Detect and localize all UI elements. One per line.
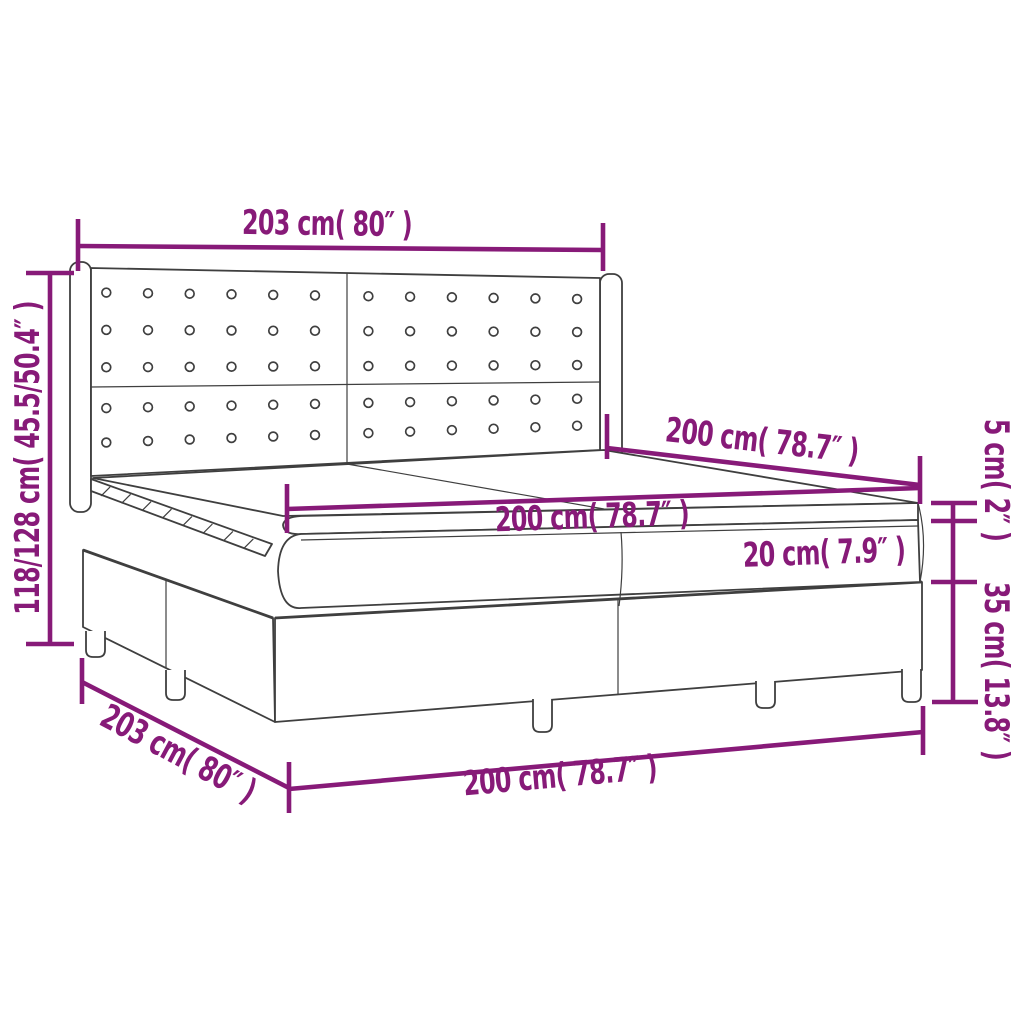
tufting-button — [448, 361, 457, 370]
tufting-button — [448, 397, 457, 406]
tufting-button — [406, 327, 415, 336]
tufting-button — [269, 362, 278, 371]
tufting-button — [185, 363, 194, 372]
tufting-button — [144, 326, 153, 335]
tufting-button — [364, 399, 373, 408]
tufting-button — [531, 395, 540, 404]
tufting-button — [102, 404, 111, 413]
tufting-button — [185, 289, 194, 298]
tufting-button — [406, 361, 415, 370]
dim-top-line — [78, 246, 603, 250]
tufting-button — [102, 326, 111, 335]
bed-leg — [166, 670, 185, 700]
tufting-button — [489, 361, 498, 370]
tufting-button — [102, 438, 111, 447]
tufting-button — [364, 362, 373, 371]
tufting-button — [269, 291, 278, 300]
tufting-button — [406, 398, 415, 407]
tufting-button — [489, 294, 498, 303]
tufting-button — [364, 429, 373, 438]
tufting-button — [531, 294, 540, 303]
tufting-button — [311, 291, 320, 300]
tufting-button — [489, 424, 498, 433]
tufting-button — [144, 363, 153, 372]
tufting-button — [364, 292, 373, 301]
tufting-button — [573, 394, 582, 403]
tufting-button — [144, 403, 153, 412]
tufting-button — [311, 362, 320, 371]
tufting-button — [489, 396, 498, 405]
tufting-button — [227, 290, 236, 299]
dim-label-headboard-width: 203 cm( 80″ ) — [242, 206, 412, 242]
tufting-button — [269, 326, 278, 335]
tufting-button — [269, 432, 278, 441]
tufting-button — [364, 327, 373, 336]
dim-label-mattress-length: 200 cm( 78.7″ ) — [494, 497, 689, 538]
tufting-button — [531, 423, 540, 432]
tufting-button — [227, 362, 236, 371]
tufting-button — [489, 327, 498, 336]
tufting-button — [144, 437, 153, 446]
dim-label-mattress-height: 20 cm( 7.9″ ) — [742, 533, 905, 573]
tufting-button — [269, 400, 278, 409]
dim-label-topper-height: 5 cm( 2″ ) — [979, 419, 1013, 541]
tufting-button — [102, 288, 111, 297]
tufting-button — [448, 293, 457, 302]
headboard-right-wing — [600, 274, 622, 466]
dim-label-height-range: 118/128 cm( 45.5/50.4″ ) — [11, 301, 45, 615]
bed-leg — [86, 631, 105, 657]
tufting-button — [448, 327, 457, 336]
bed-leg — [756, 681, 775, 708]
tufting-button — [406, 292, 415, 301]
tufting-button — [102, 363, 111, 372]
tufting-button — [406, 427, 415, 436]
tufting-button — [311, 431, 320, 440]
tufting-button — [185, 402, 194, 411]
tufting-button — [573, 421, 582, 430]
diagram-canvas: 203 cm( 80″ ) 118/128 cm( 45.5/50.4″ ) 2… — [0, 0, 1024, 1024]
tufting-button — [531, 327, 540, 336]
tufting-button — [448, 426, 457, 435]
tufting-button — [311, 326, 320, 335]
tufting-button — [311, 400, 320, 409]
tufting-button — [573, 328, 582, 337]
headboard-left-wing — [70, 262, 91, 512]
tufting-button — [573, 295, 582, 304]
tufting-button — [531, 361, 540, 370]
tufting-button — [185, 326, 194, 335]
headboard-panel — [91, 268, 600, 476]
tufting-button — [573, 361, 582, 370]
bed-leg — [533, 699, 552, 732]
tufting-button — [227, 434, 236, 443]
dim-label-base-height: 35 cm( 13.8″ ) — [979, 582, 1013, 760]
tufting-button — [185, 435, 194, 444]
tufting-button — [227, 401, 236, 410]
tufting-button — [144, 289, 153, 298]
bed-leg — [902, 669, 921, 702]
tufting-button — [227, 326, 236, 335]
